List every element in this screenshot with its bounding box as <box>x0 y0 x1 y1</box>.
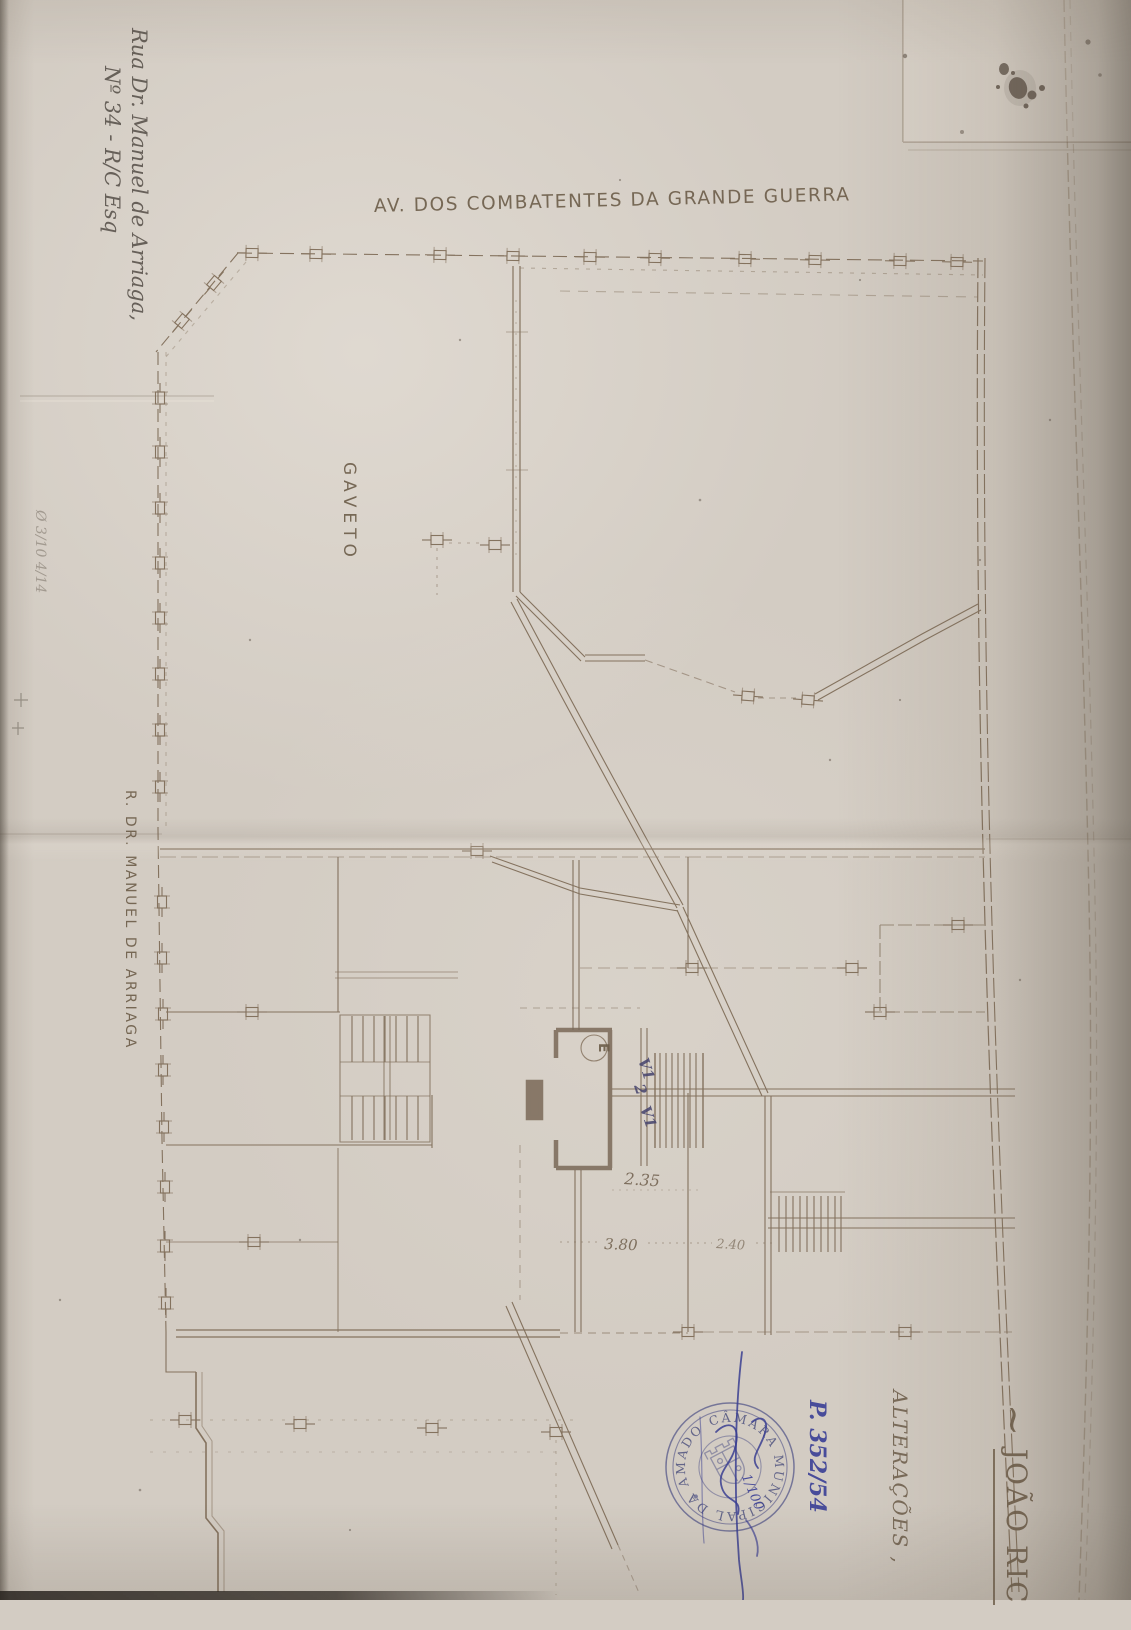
municipal-stamp: CÂMARA MUNICIPAL DA AMADORA <box>643 1380 816 1553</box>
right-boundary <box>977 258 1019 1592</box>
unit-number-mark: 2 <box>630 1081 651 1097</box>
avenue-label: AV. DOS COMBATENTES DA GRANDE GUERRA <box>374 184 851 217</box>
lower-block <box>160 843 1015 1340</box>
owner-name-text: JOÃO RIC <box>993 1449 1033 1605</box>
corner-chamfer <box>156 253 246 358</box>
mid-piers <box>422 532 510 595</box>
plan-text-marks: AV. DOS COMBATENTES DA GRANDE GUERRA GAV… <box>122 184 851 1254</box>
dimension-235: 2.35 <box>623 1169 661 1191</box>
dimension-240: 2.40 <box>715 1237 746 1254</box>
stamp-ring-text: CÂMARA MUNICIPAL DA AMADORA <box>653 1390 808 1545</box>
address-line2: Nº 34 - R/C Esq <box>100 28 124 233</box>
faint-margin-note: Ø 3/10 4/14 <box>32 510 48 630</box>
process-number-note: P. 352/54 <box>804 1400 830 1560</box>
window-upper-mark: V1 <box>634 1056 658 1083</box>
paper-highlight <box>0 0 1131 1600</box>
margin-plus-marks <box>12 693 28 735</box>
dimension-380: 3.80 <box>604 1235 638 1254</box>
yard-area <box>150 1302 640 1595</box>
left-boundary <box>152 352 174 1332</box>
right-edge-shadow <box>0 0 1131 1600</box>
vertical-tone <box>0 0 1131 1600</box>
entrance-core <box>528 1030 612 1168</box>
upper-room <box>506 266 981 709</box>
title-owner-name: ~ JOÃO RIC <box>992 1404 1036 1614</box>
title-tilde: ~ <box>992 1404 1036 1438</box>
gaveto-label: GAVETO <box>339 462 359 562</box>
left-edge-shadow <box>0 0 9 1600</box>
stamp-overlay-note: 1/100 <box>738 1472 778 1543</box>
signature-mark <box>700 1352 766 1600</box>
bottom-edge-shadow <box>0 1591 560 1600</box>
elevator-circle <box>581 1035 607 1061</box>
corner-sheet-tone <box>903 0 1131 142</box>
address-note: Rua Dr. Manuel de Arriaga, Nº 34 - R/C E… <box>98 28 152 408</box>
top-boundary <box>237 245 983 297</box>
address-line1: Rua Dr. Manuel de Arriaga, <box>127 28 151 321</box>
window-lower-mark: V1 <box>636 1104 660 1131</box>
central-diagonals <box>490 599 768 1096</box>
horizontal-fold <box>0 818 1131 862</box>
stamp-separator-dot <box>693 1494 698 1499</box>
ink-stains <box>59 39 1102 1531</box>
floor-plan-drawing: AV. DOS COMBATENTES DA GRANDE GUERRA GAV… <box>0 0 1131 1600</box>
paper-creases <box>0 0 1131 1600</box>
scanned-floor-plan-page: { "colors": { "paper": "#d3ccc3", "plan_… <box>0 0 1131 1600</box>
street-label: R. DR. MANUEL DE ARRIAGA <box>122 790 138 1050</box>
title-alterations: ALTERAÇÕES , <box>888 1390 912 1630</box>
elevator-mark: E <box>595 1043 611 1053</box>
